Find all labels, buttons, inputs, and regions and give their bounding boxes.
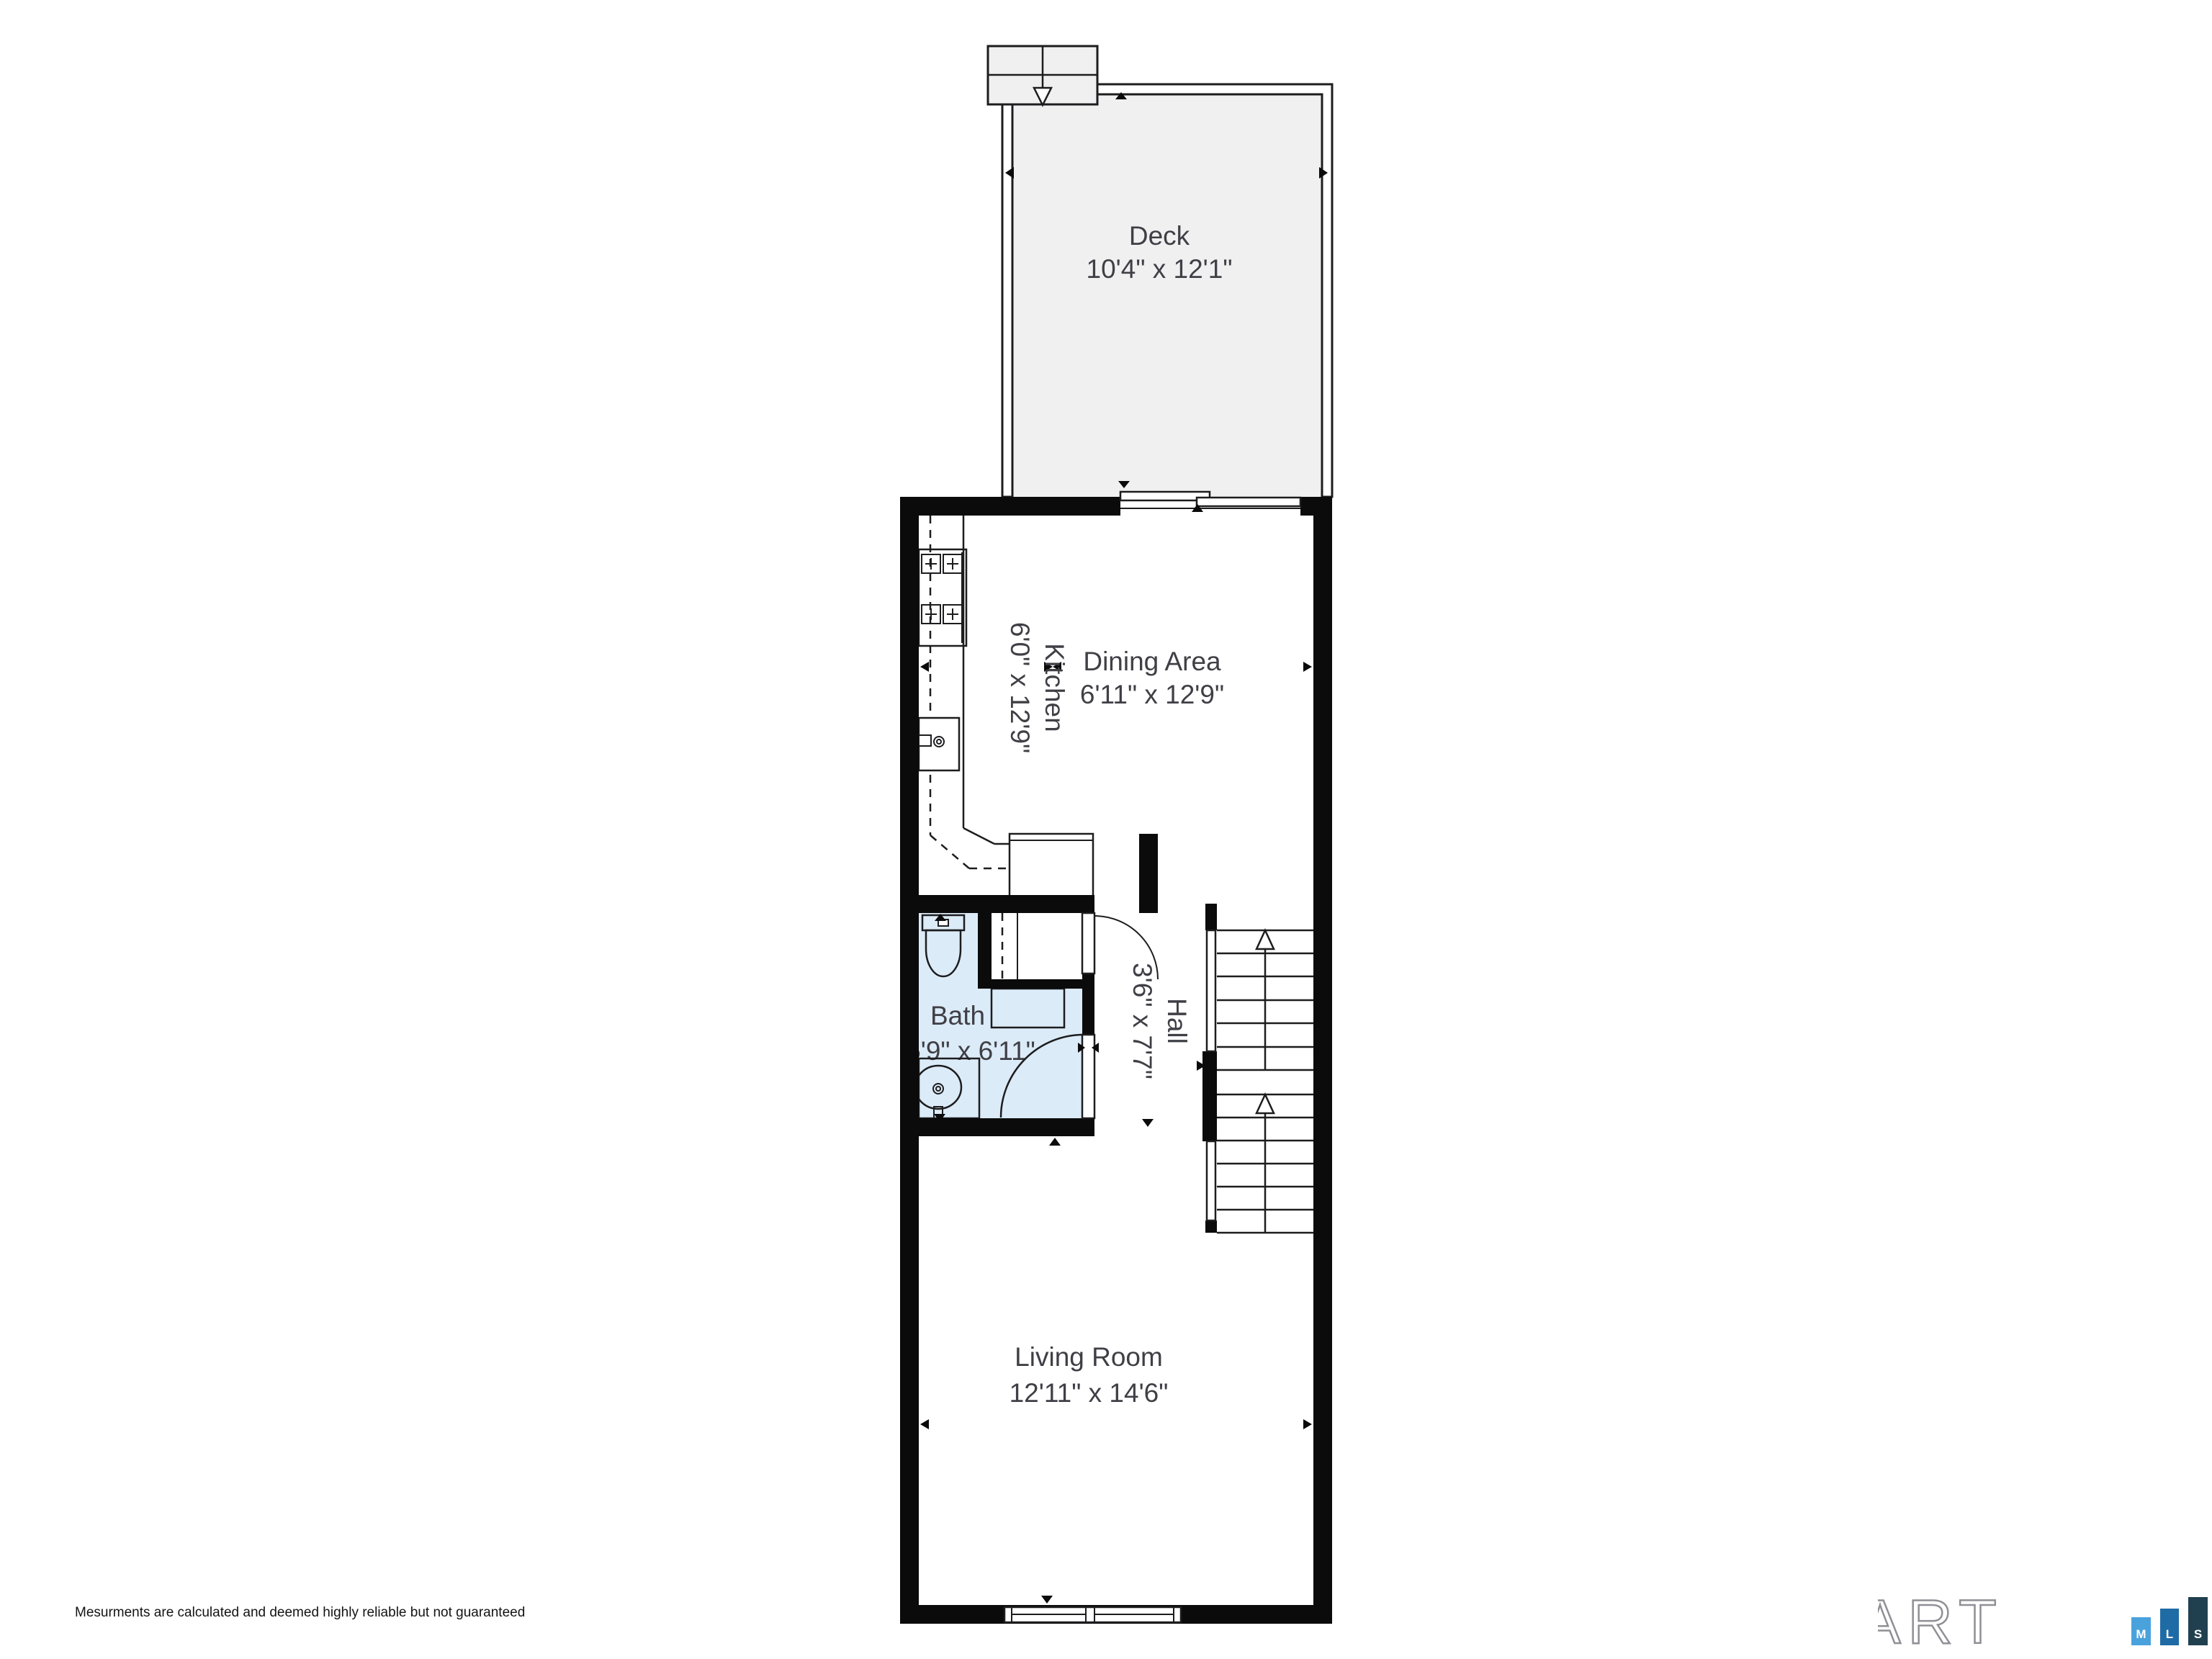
window-icon [1004,1596,1181,1622]
mls-tile-s: S [2188,1597,2208,1645]
floor-plan: 5'9" x 6'11" [0,0,2212,1659]
deck-floor [1012,94,1322,497]
dining-dims: 6'11" x 12'9" [1080,680,1224,709]
living-room-dims: 12'11" x 14'6" [1010,1378,1169,1408]
deck-dims: 10'4" x 12'1" [1087,254,1233,284]
up-arrow-icon [1256,1094,1274,1113]
bath-label: Bath [930,1001,985,1030]
hall-label: Hall [1162,998,1192,1044]
kitchen-dims: 6'0" x 12'9" [1005,622,1035,753]
dim-arrow-down-icon [1041,1596,1053,1604]
svg-text:SMART: SMART [1878,1598,2004,1645]
deck-area [1002,84,1332,497]
mls-tile-m: M [2131,1617,2151,1645]
smart-mls-logo: SMART M L S [1878,1597,2208,1645]
hall-dims: 3'6" x 7'7" [1128,963,1157,1079]
stove-icon [919,549,966,646]
bath-dims: 5'9" x 6'11" [906,1036,1035,1066]
mls-tiles: M L S [2131,1597,2208,1645]
mls-tile-l: L [2160,1609,2179,1645]
up-arrow-icon [1256,930,1274,949]
deck-steps-icon [988,46,1097,105]
deck-label: Deck [1129,221,1190,251]
kitchen-label: Kitchen [1040,643,1069,732]
closet-door-leaf [1082,913,1094,974]
floor-plan-page: 5'9" x 6'11" [0,0,2212,1659]
dining-label: Dining Area [1083,647,1221,676]
smart-wordmark: SMART [1878,1598,2120,1645]
staircase-icon [1217,930,1313,1233]
living-room-label: Living Room [1015,1342,1163,1372]
refrigerator-icon [1010,834,1093,900]
kitchen-sink-icon [919,718,959,770]
disclaimer-text: Mesurments are calculated and deemed hig… [75,1605,525,1621]
